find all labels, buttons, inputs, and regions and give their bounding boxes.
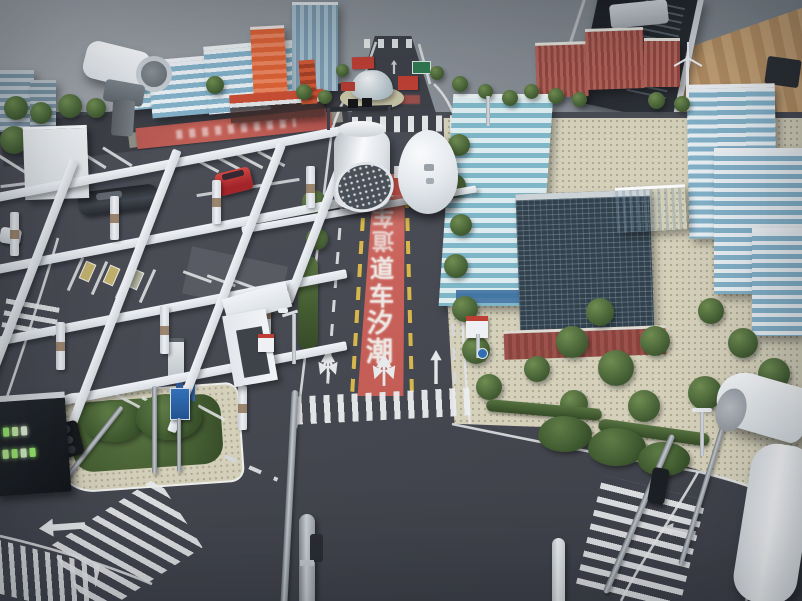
tree [640, 326, 670, 356]
glass-dome [351, 70, 393, 100]
tree [318, 90, 332, 104]
red-banner-sign [352, 57, 374, 70]
frame-post [160, 306, 169, 354]
red-banner-sign [341, 82, 355, 91]
led-matrix-row [3, 426, 28, 437]
tree [728, 328, 758, 358]
plaza-lamp-pole [700, 412, 704, 456]
upper-road-arrow-icon [388, 60, 400, 74]
tree [524, 84, 539, 99]
tree [452, 76, 468, 92]
tree [336, 64, 349, 77]
tree [572, 92, 587, 107]
tidal-char-far-dao: 道 [372, 228, 394, 250]
tree [524, 356, 550, 382]
led-matrix-row [2, 448, 36, 459]
tree [4, 96, 28, 120]
tree [476, 374, 502, 400]
egg-pod [398, 130, 458, 214]
led-segment [2, 450, 9, 459]
street-lamp-pole [292, 314, 296, 364]
left-arrow-icon [35, 516, 88, 538]
signal-pole [152, 386, 157, 474]
tidal-char-xi: 汐 [367, 311, 393, 337]
tree [648, 92, 665, 109]
blue-wayfinding-sign [170, 388, 190, 420]
frame-post [10, 212, 19, 256]
led-segment [20, 448, 27, 457]
street-lamp-pole [486, 96, 490, 126]
pole-band [300, 560, 314, 566]
tree [296, 84, 312, 100]
led-traffic-display [0, 391, 71, 496]
foreground-pole-white [552, 538, 565, 601]
tree [598, 350, 634, 386]
led-segment [29, 448, 36, 457]
wind-turbine-blade [687, 42, 689, 58]
low-white-building [615, 184, 687, 233]
sign-pole [177, 418, 181, 472]
brick-apartment [535, 41, 589, 98]
frame-post [56, 322, 65, 370]
tree [86, 98, 106, 118]
pole-attachment-black [310, 534, 323, 562]
straight-arrow-icon [429, 350, 443, 384]
bush [538, 416, 592, 452]
tree [206, 76, 224, 94]
tree [502, 90, 518, 106]
small-sign-red-white [258, 334, 274, 352]
tidal-lane-arrow-icon [371, 354, 397, 388]
tree [674, 96, 690, 112]
led-segment [3, 427, 10, 436]
blue-round-sign [477, 348, 488, 359]
tree [628, 390, 660, 422]
bush [136, 394, 202, 440]
cylinder-pod-cap [338, 121, 386, 137]
tree [548, 88, 564, 104]
egg-pod-mark [426, 178, 434, 184]
plaza-lamp-head [692, 408, 712, 412]
orange-station-tower [250, 25, 288, 102]
green-direction-sign [412, 61, 431, 74]
tree [698, 298, 724, 324]
brick-apartment [644, 38, 680, 87]
tree [58, 94, 82, 118]
frame-post [110, 196, 119, 240]
tree [450, 214, 472, 236]
gantry-signal-box [362, 98, 372, 107]
camera-left-mount [111, 99, 135, 136]
blue-tower-small [752, 228, 802, 336]
gantry-signal-box [348, 99, 358, 108]
tree [30, 102, 52, 124]
bush [84, 400, 144, 442]
brick-apartment [585, 27, 645, 90]
frame-post [238, 386, 247, 430]
tree [586, 298, 614, 326]
tree [556, 326, 588, 358]
red-banner-sign [398, 76, 418, 90]
tree [430, 66, 444, 80]
egg-pod-mark [424, 164, 434, 171]
led-segment [11, 449, 18, 458]
tidal-char-che: 车 [369, 284, 394, 309]
tree [444, 254, 468, 278]
frame-post [306, 166, 315, 208]
gantry-post [327, 108, 330, 130]
street-lamp-head [278, 308, 288, 313]
led-segment [12, 427, 19, 436]
frame-post [212, 180, 221, 224]
tidal-char-dao: 道 [370, 257, 394, 281]
crosswalk-upper-road [364, 39, 416, 48]
led-segment [21, 426, 28, 435]
model-photo: 潮 汐 车 道 道 车 汐 [0, 0, 802, 601]
wind-turbine-pole [686, 56, 689, 102]
gantry-post [388, 106, 391, 128]
